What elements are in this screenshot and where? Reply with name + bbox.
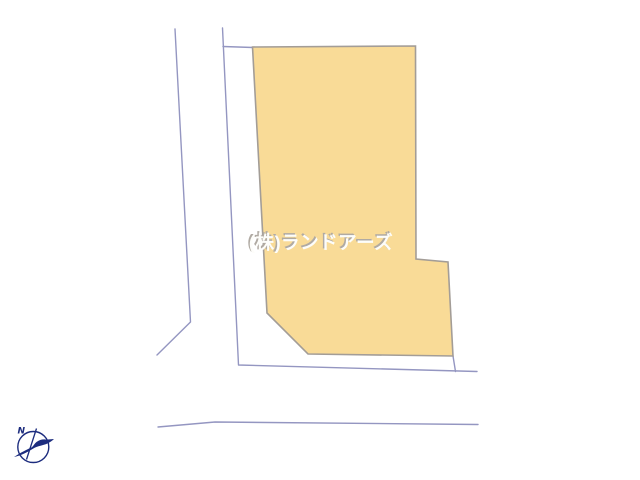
road-line [157, 29, 191, 355]
road-line [223, 47, 253, 48]
site-plan-canvas: N (株)ランドアーズ [0, 0, 640, 480]
compass-north-icon: N [14, 427, 54, 463]
site-plan-drawing: N [0, 0, 640, 480]
lot-parcel-polygon [253, 46, 454, 356]
compass-n-label: N [18, 427, 26, 437]
road-line [158, 422, 478, 427]
compass-bird-figure [14, 439, 54, 457]
road-line [453, 356, 456, 372]
